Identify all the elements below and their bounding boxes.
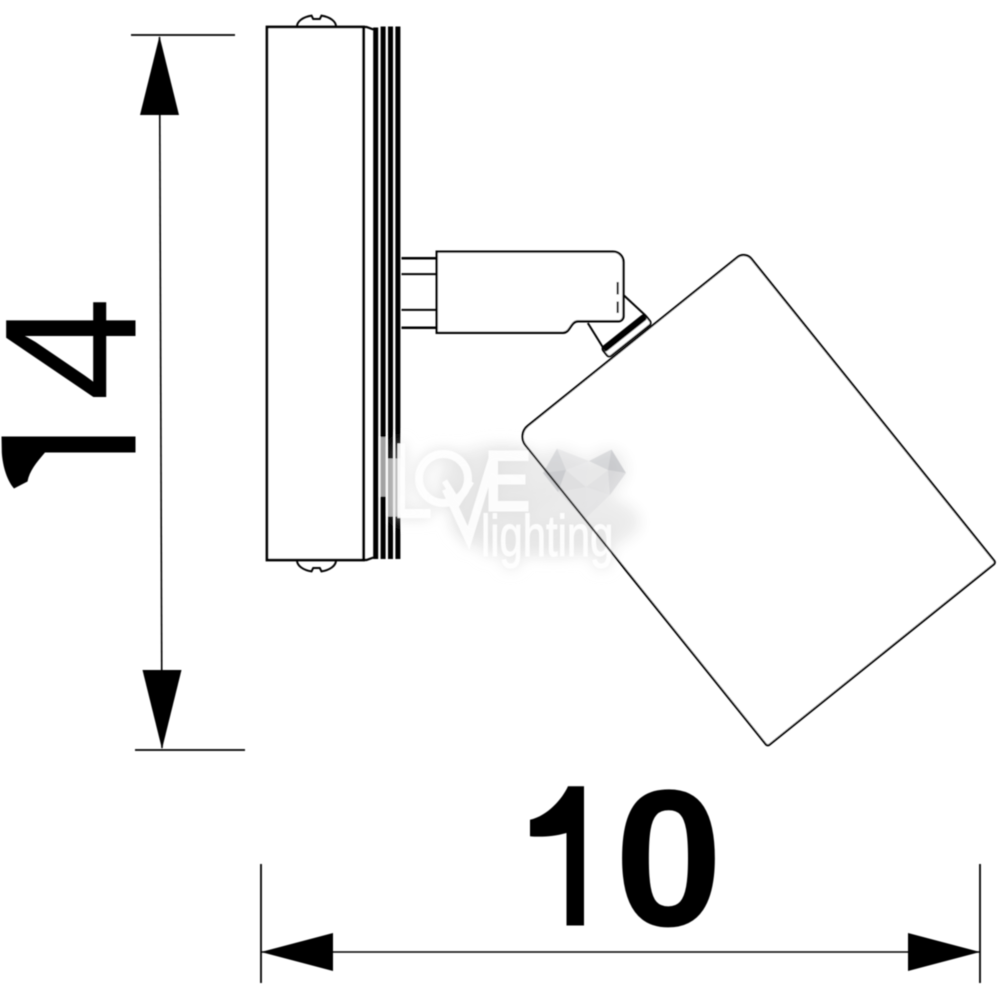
svg-text:0: 0 bbox=[614, 750, 722, 968]
svg-text:4: 4 bbox=[0, 297, 176, 402]
